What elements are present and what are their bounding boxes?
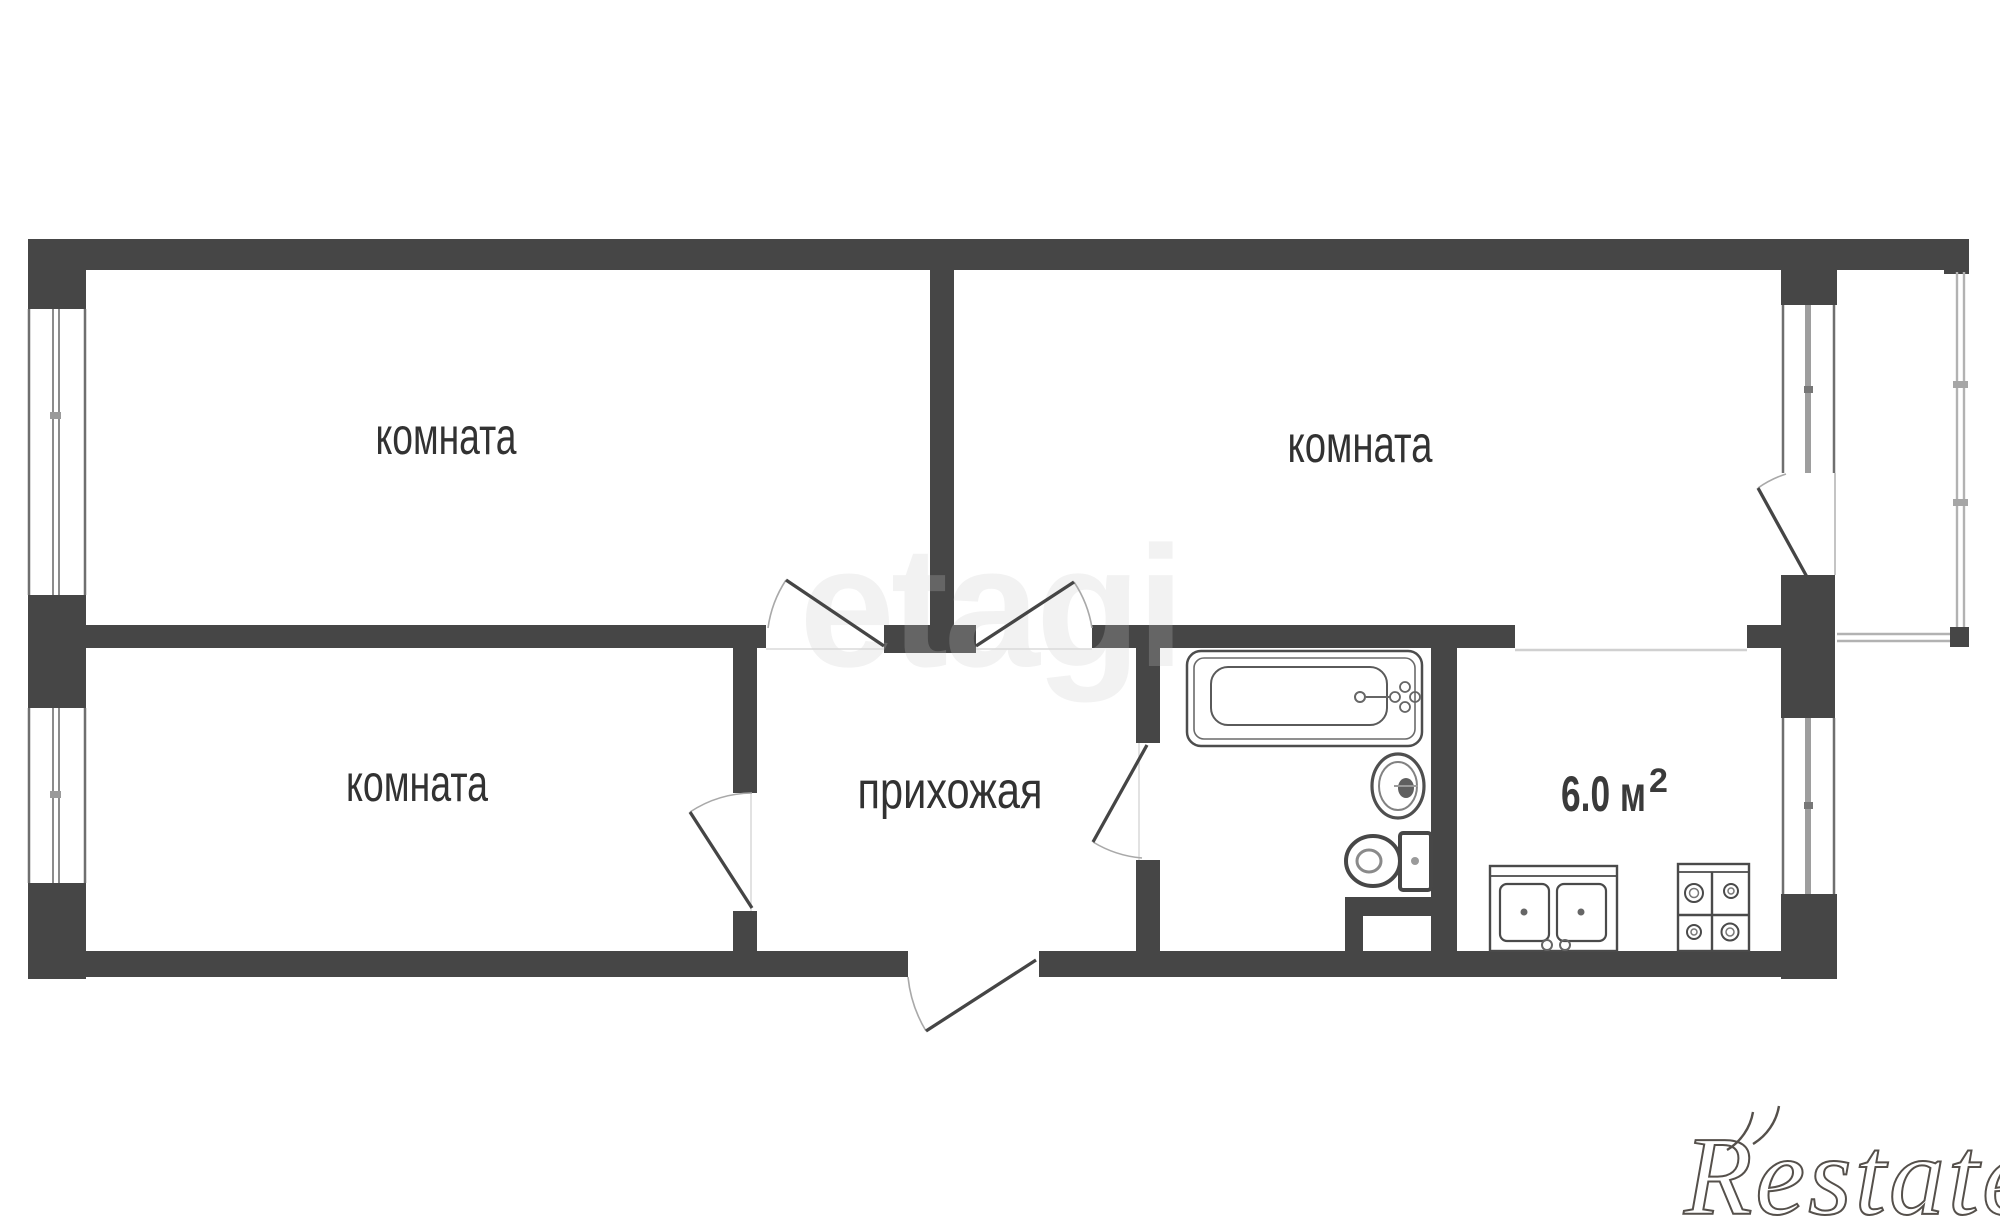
svg-text:etagi: etagi [799, 511, 1180, 703]
svg-text:6.0 м: 6.0 м [1561, 766, 1646, 822]
svg-text:прихожая: прихожая [858, 762, 1043, 820]
svg-text:2: 2 [1649, 762, 1668, 800]
svg-text:комната: комната [346, 755, 488, 813]
svg-text:комната: комната [376, 408, 517, 466]
svg-text:Restate: Restate [1683, 1115, 2000, 1223]
svg-text:комната: комната [1288, 416, 1433, 474]
